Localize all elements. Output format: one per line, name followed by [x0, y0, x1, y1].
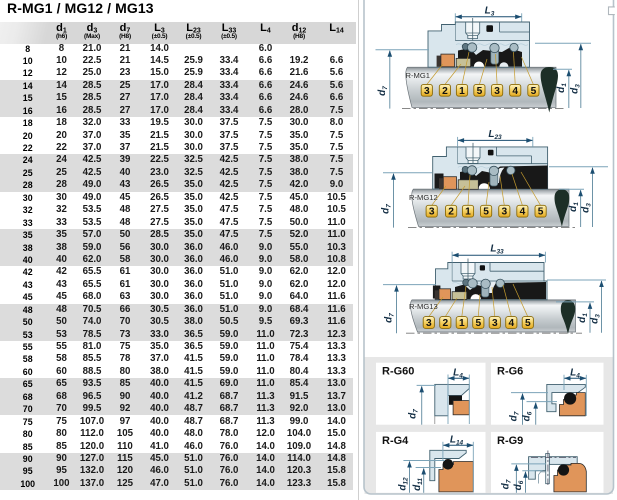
- svg-text:R-MG12: R-MG12: [409, 193, 438, 202]
- svg-text:5: 5: [483, 207, 489, 218]
- svg-text:4: 4: [520, 207, 526, 218]
- svg-text:5: 5: [538, 207, 544, 218]
- svg-text:R-G60: R-G60: [382, 366, 414, 378]
- svg-text:5: 5: [531, 86, 537, 97]
- svg-text:R-G6: R-G6: [497, 366, 523, 378]
- svg-text:1: 1: [465, 207, 471, 218]
- svg-text:3: 3: [424, 86, 430, 97]
- svg-text:R-MG1: R-MG1: [406, 71, 430, 80]
- svg-text:5: 5: [475, 318, 481, 329]
- svg-text:2: 2: [448, 207, 454, 218]
- svg-text:3: 3: [492, 318, 498, 329]
- svg-text:R-MG13: R-MG13: [409, 302, 438, 311]
- svg-text:5: 5: [477, 86, 483, 97]
- svg-text:2: 2: [442, 318, 448, 329]
- svg-text:4: 4: [508, 318, 514, 329]
- svg-text:2: 2: [442, 86, 448, 97]
- svg-text:R-G9: R-G9: [497, 435, 523, 447]
- svg-text:R-G4: R-G4: [382, 435, 409, 447]
- svg-text:1: 1: [459, 86, 465, 97]
- svg-text:1: 1: [459, 318, 465, 329]
- svg-text:3: 3: [494, 86, 500, 97]
- svg-text:5: 5: [525, 318, 531, 329]
- svg-text:3: 3: [429, 207, 435, 218]
- svg-text:4: 4: [512, 86, 518, 97]
- svg-text:3: 3: [426, 318, 432, 329]
- svg-text:3: 3: [501, 207, 507, 218]
